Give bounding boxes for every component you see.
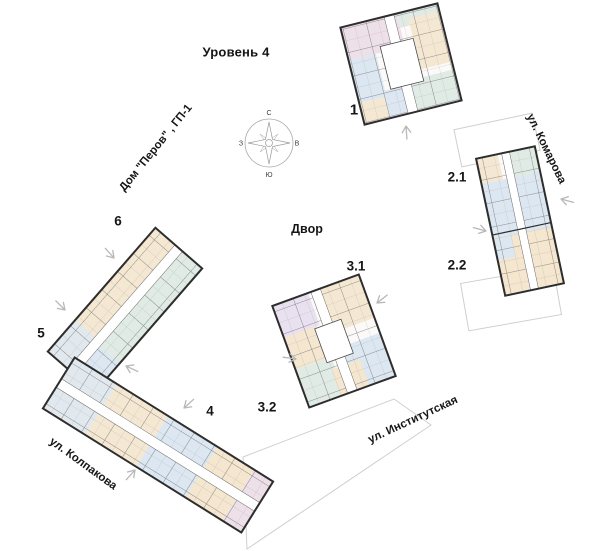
entrance-arrow: [123, 467, 138, 482]
compass-west-label: З: [239, 141, 243, 148]
building-1-plan[interactable]: [340, 3, 461, 124]
compass-rose: С Ю З В: [239, 110, 300, 179]
building-4-plan[interactable]: [43, 358, 273, 533]
entrance-arrow: [560, 195, 575, 206]
compass-south-label: Ю: [265, 172, 272, 179]
entrance-arrow: [181, 396, 196, 411]
building-2-2-label[interactable]: 2.2: [448, 258, 467, 273]
entrance-arrow: [124, 362, 139, 375]
compass-east-label: В: [295, 141, 300, 148]
building-5-label[interactable]: 5: [37, 326, 45, 341]
courtyard-label: Двор: [291, 222, 323, 236]
entrance-arrow: [402, 126, 411, 140]
entrance-arrow: [53, 298, 68, 313]
building-3-2-label[interactable]: 3.2: [258, 400, 277, 415]
level-title: Уровень 4: [202, 45, 269, 60]
building-2-1-label[interactable]: 2.1: [448, 170, 467, 185]
compass-north-label: С: [266, 110, 271, 117]
building-3-1-plan[interactable]: [272, 275, 395, 408]
entrance-arrow: [374, 292, 389, 307]
entrance-arrow: [472, 224, 487, 235]
building-1-label[interactable]: 1: [350, 102, 358, 119]
entrance-arrow: [102, 246, 117, 261]
building-6-label[interactable]: 6: [114, 214, 122, 229]
building-3-1-label[interactable]: 3.1: [347, 259, 366, 274]
floor-plan-canvas: С Ю З В Уровень 4 Дом "Перов" , ГП-1 Дво…: [0, 0, 600, 551]
building-4-label[interactable]: 4: [206, 404, 214, 419]
